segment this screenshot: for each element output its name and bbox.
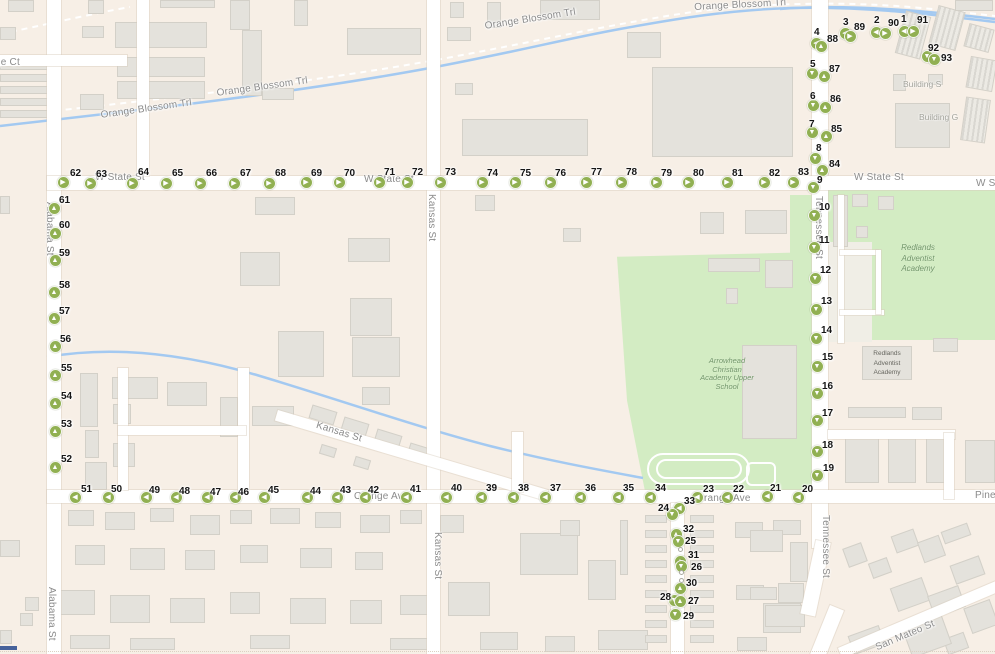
- direction-arrow-icon: ◀: [443, 494, 448, 501]
- route-marker-label: 66: [206, 168, 217, 179]
- direction-arrow-icon: ▶: [882, 30, 887, 37]
- route-marker-30[interactable]: ▲: [674, 582, 687, 595]
- building: [353, 456, 371, 470]
- route-marker-27[interactable]: ▲: [674, 595, 687, 608]
- building: [8, 0, 34, 12]
- route-marker-label: 35: [623, 483, 634, 494]
- direction-arrow-icon: ▲: [52, 464, 59, 471]
- building: [560, 520, 580, 536]
- route-marker-62[interactable]: ▶: [57, 176, 70, 189]
- direction-arrow-icon: ◀: [72, 494, 77, 501]
- building: [250, 635, 290, 649]
- route-marker-label: 30: [686, 578, 697, 589]
- building: [917, 535, 946, 564]
- direction-arrow-icon: ◀: [204, 494, 209, 501]
- route-marker-29[interactable]: ▼: [669, 608, 682, 621]
- route-marker-label: 88: [827, 34, 838, 45]
- building: [167, 382, 207, 406]
- building: [315, 512, 341, 528]
- route-marker-label: 67: [240, 168, 251, 179]
- route-marker-66[interactable]: ▶: [194, 177, 207, 190]
- route-marker-label: 41: [410, 484, 421, 495]
- route-marker-label: 38: [518, 483, 529, 494]
- building: [700, 212, 724, 234]
- building: [80, 94, 104, 110]
- route-marker-label: 26: [691, 562, 702, 573]
- tile-edge: [0, 651, 995, 652]
- building: [933, 338, 958, 352]
- route-marker-label: 16: [822, 381, 833, 392]
- building: [130, 548, 165, 570]
- building: [645, 635, 667, 643]
- building: [450, 2, 464, 18]
- route-marker-label: 78: [626, 167, 637, 178]
- route-marker-55[interactable]: ▲: [49, 369, 62, 382]
- direction-arrow-icon: ▼: [813, 335, 820, 342]
- route-marker-label: 24: [658, 503, 669, 514]
- building: [745, 210, 787, 234]
- route-marker-label: 21: [770, 483, 781, 494]
- building: [627, 32, 661, 58]
- route-marker-label: 1: [901, 14, 907, 25]
- building: [520, 533, 578, 575]
- direction-arrow-icon: ▼: [931, 56, 938, 63]
- building: [25, 597, 39, 611]
- building: [400, 510, 422, 524]
- direction-arrow-icon: ▶: [724, 179, 729, 186]
- route-marker-label: 4: [814, 27, 820, 38]
- building: [765, 605, 805, 627]
- route-marker-label: 65: [172, 168, 183, 179]
- direction-arrow-icon: ▼: [814, 448, 821, 455]
- route-marker-51[interactable]: ◀: [69, 491, 82, 504]
- route-marker-label: 49: [149, 485, 160, 496]
- route-marker-19[interactable]: ▼: [811, 469, 824, 482]
- route-marker-label: 44: [310, 486, 321, 497]
- route-marker-label: 40: [451, 483, 462, 494]
- solar-array: [963, 23, 994, 53]
- direction-arrow-icon: ▶: [618, 179, 623, 186]
- route-marker-88[interactable]: ▲: [815, 40, 828, 53]
- building: [965, 440, 995, 483]
- direction-arrow-icon: ▲: [51, 205, 58, 212]
- direction-arrow-icon: ▶: [685, 179, 690, 186]
- route-marker-label: 63: [96, 169, 107, 180]
- route-marker-label: 80: [693, 168, 704, 179]
- route-marker-label: 81: [732, 168, 743, 179]
- building: [360, 515, 390, 533]
- route-marker-label: 51: [81, 484, 92, 495]
- route-marker-label: 20: [802, 484, 813, 495]
- route-marker-label: 85: [831, 124, 842, 135]
- route-marker-label: 58: [59, 280, 70, 291]
- building: [852, 194, 868, 207]
- direction-arrow-icon: ▶: [404, 179, 409, 186]
- route-marker-label: 11: [819, 235, 830, 246]
- route-marker-label: 32: [683, 524, 694, 535]
- direction-arrow-icon: ◀: [647, 494, 652, 501]
- direction-arrow-icon: ▶: [512, 179, 517, 186]
- route-marker-label: 19: [823, 463, 834, 474]
- direction-arrow-icon: ▶: [847, 33, 852, 40]
- route-marker-label: 33: [684, 496, 695, 507]
- route-marker-label: 22: [733, 484, 744, 495]
- building: [240, 545, 268, 563]
- building: [115, 22, 207, 48]
- route-marker-label: 53: [61, 419, 72, 430]
- route-marker-label: 15: [822, 352, 833, 363]
- building-label: Redlands Adventist Academy: [862, 349, 912, 378]
- direction-arrow-icon: ◀: [901, 28, 906, 35]
- direction-arrow-icon: ◀: [542, 494, 547, 501]
- direction-arrow-icon: ▶: [303, 179, 308, 186]
- building: [350, 298, 392, 336]
- street-label: Kansas St: [426, 194, 437, 241]
- map-canvas[interactable]: Orange CtOrange Blossom TrlOrange Blosso…: [0, 0, 995, 654]
- direction-arrow-icon: ▶: [163, 180, 168, 187]
- building: [878, 196, 894, 210]
- direction-arrow-icon: ▶: [761, 179, 766, 186]
- building: [955, 0, 993, 11]
- building: [319, 444, 337, 458]
- building: [362, 387, 390, 405]
- route-marker-label: 27: [688, 596, 699, 607]
- direction-arrow-icon: ▲: [823, 133, 830, 140]
- building: [290, 598, 326, 624]
- building: [70, 635, 110, 649]
- place-label: Building G: [919, 112, 958, 122]
- route-marker-label: 3: [843, 17, 849, 28]
- street-label: Kansas St: [432, 532, 443, 579]
- direction-arrow-icon: ▼: [814, 472, 821, 479]
- waypoint-dot: [679, 570, 684, 575]
- parking-area: [828, 242, 872, 342]
- direction-arrow-icon: ▶: [87, 180, 92, 187]
- direction-arrow-icon: ▲: [52, 343, 59, 350]
- route-marker-label: 29: [683, 611, 694, 622]
- direction-arrow-icon: ▼: [678, 563, 685, 570]
- route-marker-label: 62: [70, 168, 81, 179]
- direction-arrow-icon: ▲: [821, 73, 828, 80]
- direction-arrow-icon: ◀: [510, 494, 515, 501]
- route-marker-67[interactable]: ▶: [228, 177, 241, 190]
- direction-arrow-icon: ◀: [795, 494, 800, 501]
- direction-arrow-icon: ▲: [52, 257, 59, 264]
- route-marker-label: 86: [830, 94, 841, 105]
- direction-arrow-icon: ▼: [813, 306, 820, 313]
- route-marker-label: 54: [61, 391, 72, 402]
- route-marker-label: 72: [412, 167, 423, 178]
- direction-arrow-icon: ▶: [336, 179, 341, 186]
- direction-arrow-icon: ▶: [479, 179, 484, 186]
- street-label: Orange Blossom Trl: [694, 0, 786, 13]
- route-marker-54[interactable]: ▲: [49, 397, 62, 410]
- building: [0, 110, 52, 118]
- building: [888, 437, 916, 483]
- building: [60, 590, 95, 615]
- building: [0, 540, 20, 557]
- building: [0, 630, 12, 644]
- building: [726, 288, 738, 304]
- building: [150, 508, 174, 522]
- road: [118, 426, 246, 435]
- road: [838, 195, 844, 343]
- direction-arrow-icon: ▲: [677, 598, 684, 605]
- route-marker-label: 82: [769, 168, 780, 179]
- street-label: Tennessee St: [820, 515, 831, 578]
- direction-arrow-icon: ◀: [173, 494, 178, 501]
- building: [448, 582, 490, 616]
- direction-arrow-icon: ▼: [810, 102, 817, 109]
- route-marker-label: 9: [817, 175, 823, 186]
- route-marker-label: 43: [340, 485, 351, 496]
- direction-arrow-icon: ▶: [653, 179, 658, 186]
- route-marker-label: 89: [854, 22, 865, 33]
- building: [690, 515, 714, 523]
- building: [0, 98, 52, 106]
- route-marker-label: 64: [138, 167, 149, 178]
- direction-arrow-icon: ▶: [376, 179, 381, 186]
- building: [652, 67, 793, 157]
- route-marker-52[interactable]: ▲: [49, 461, 62, 474]
- place-label: Building S: [903, 79, 941, 89]
- building: [765, 260, 793, 288]
- building: [842, 542, 868, 568]
- building: [645, 560, 667, 568]
- route-marker-label: 34: [655, 483, 666, 494]
- direction-arrow-icon: ▶: [790, 179, 795, 186]
- building: [891, 528, 920, 553]
- building: [20, 613, 33, 626]
- route-marker-93[interactable]: ▼: [928, 53, 941, 66]
- route-marker-label: 23: [703, 484, 714, 495]
- building: [645, 605, 667, 613]
- direction-arrow-icon: ▼: [669, 511, 676, 518]
- direction-arrow-icon: ◀: [403, 494, 408, 501]
- building: [750, 530, 783, 552]
- building: [750, 587, 777, 600]
- building: [480, 632, 518, 650]
- direction-arrow-icon: ▶: [129, 180, 134, 187]
- route-marker-label: 8: [816, 143, 822, 154]
- route-marker-25[interactable]: ▼: [672, 535, 685, 548]
- building: [350, 600, 382, 624]
- building: [620, 520, 628, 575]
- campus-label: Arrowhead Christian Academy Upper School: [687, 357, 767, 391]
- direction-arrow-icon: ▶: [197, 180, 202, 187]
- building: [856, 226, 868, 238]
- building: [598, 630, 648, 650]
- building: [75, 545, 105, 565]
- road: [840, 250, 878, 255]
- route-marker-label: 79: [661, 168, 672, 179]
- route-marker-68[interactable]: ▶: [263, 177, 276, 190]
- direction-arrow-icon: ▼: [811, 212, 818, 219]
- road: [137, 0, 149, 176]
- campus-label: Redlands Adventist Academy: [880, 243, 956, 275]
- direction-arrow-icon: ▼: [811, 244, 818, 251]
- route-marker-label: 50: [111, 484, 122, 495]
- building: [455, 83, 473, 95]
- scale-bar: [0, 646, 17, 650]
- building: [160, 0, 215, 8]
- building: [690, 635, 714, 643]
- building: [588, 560, 616, 600]
- route-marker-label: 84: [829, 159, 840, 170]
- direction-arrow-icon: ◀: [764, 493, 769, 500]
- waypoint-dot: [678, 547, 683, 552]
- building: [708, 258, 760, 272]
- route-marker-label: 91: [917, 15, 928, 26]
- building: [82, 26, 104, 38]
- direction-arrow-icon: ▼: [814, 390, 821, 397]
- direction-arrow-icon: ▲: [818, 43, 825, 50]
- building: [475, 195, 495, 211]
- direction-arrow-icon: ▲: [819, 167, 826, 174]
- building: [230, 592, 260, 614]
- direction-arrow-icon: ▼: [809, 70, 816, 77]
- street-label: Alabama St: [46, 587, 57, 641]
- direction-arrow-icon: ▲: [52, 372, 59, 379]
- direction-arrow-icon: ▼: [675, 538, 682, 545]
- direction-arrow-icon: ▲: [52, 428, 59, 435]
- building: [0, 74, 52, 82]
- direction-arrow-icon: ◀: [232, 494, 237, 501]
- building: [117, 57, 205, 77]
- building: [190, 515, 220, 535]
- building: [170, 598, 205, 623]
- route-marker-label: 14: [821, 325, 832, 336]
- building: [545, 636, 575, 652]
- route-marker-label: 17: [822, 408, 833, 419]
- route-marker-label: 39: [486, 483, 497, 494]
- building: [790, 542, 808, 582]
- route-marker-label: 73: [445, 167, 456, 178]
- street-label: Orange Ct: [0, 57, 20, 68]
- street-label: W State St: [976, 178, 995, 189]
- direction-arrow-icon: ◀: [362, 494, 367, 501]
- building: [400, 595, 428, 615]
- route-marker-64[interactable]: ▶: [126, 177, 139, 190]
- route-marker-label: 13: [821, 296, 832, 307]
- building: [0, 27, 16, 40]
- route-marker-label: 52: [61, 454, 72, 465]
- building: [117, 81, 205, 99]
- route-marker-label: 57: [59, 306, 70, 317]
- route-marker-label: 70: [344, 168, 355, 179]
- building: [88, 0, 104, 14]
- building: [778, 583, 804, 603]
- route-marker-91[interactable]: ▶: [907, 25, 920, 38]
- building: [895, 103, 950, 148]
- route-marker-label: 48: [179, 486, 190, 497]
- building: [352, 337, 400, 377]
- solar-array: [960, 96, 991, 143]
- route-marker-label: 36: [585, 483, 596, 494]
- route-marker-label: 45: [268, 485, 279, 496]
- route-marker-label: 5: [810, 59, 816, 70]
- building: [240, 252, 280, 286]
- direction-arrow-icon: ▼: [812, 275, 819, 282]
- direction-arrow-icon: ▲: [51, 315, 58, 322]
- direction-arrow-icon: ▲: [52, 400, 59, 407]
- direction-arrow-icon: ▶: [231, 180, 236, 187]
- building: [848, 407, 906, 418]
- route-marker-label: 47: [210, 487, 221, 498]
- direction-arrow-icon: ◀: [105, 494, 110, 501]
- direction-arrow-icon: ▶: [910, 28, 915, 35]
- building: [941, 523, 972, 545]
- direction-arrow-icon: ▼: [812, 155, 819, 162]
- route-marker-label: 12: [820, 265, 831, 276]
- direction-arrow-icon: ◀: [615, 494, 620, 501]
- direction-arrow-icon: ▼: [810, 184, 817, 191]
- building: [868, 557, 892, 579]
- direction-arrow-icon: ▼: [814, 417, 821, 424]
- route-marker-label: 69: [311, 168, 322, 179]
- route-marker-65[interactable]: ▶: [160, 177, 173, 190]
- route-marker-label: 56: [60, 334, 71, 345]
- route-marker-label: 25: [685, 536, 696, 547]
- route-marker-label: 2: [874, 15, 880, 26]
- street-label: Pine Ave: [975, 490, 995, 501]
- direction-arrow-icon: ◀: [334, 494, 339, 501]
- building: [130, 638, 175, 650]
- building: [645, 530, 667, 538]
- direction-arrow-icon: ◀: [577, 494, 582, 501]
- building: [645, 620, 667, 628]
- route-marker-label: 59: [59, 248, 70, 259]
- building: [890, 577, 931, 612]
- direction-arrow-icon: ▲: [677, 585, 684, 592]
- direction-arrow-icon: ▲: [822, 104, 829, 111]
- direction-arrow-icon: ▶: [547, 179, 552, 186]
- building: [255, 197, 295, 215]
- route-marker-label: 77: [591, 167, 602, 178]
- building: [447, 27, 471, 41]
- direction-arrow-icon: ◀: [304, 494, 309, 501]
- direction-arrow-icon: ▶: [583, 179, 588, 186]
- route-marker-label: 90: [888, 18, 899, 29]
- building: [270, 508, 300, 524]
- route-marker-22[interactable]: ◀: [721, 491, 734, 504]
- direction-arrow-icon: ◀: [143, 494, 148, 501]
- building: [912, 407, 942, 420]
- street-label: W State St: [854, 172, 904, 183]
- route-marker-label: 68: [275, 168, 286, 179]
- route-marker-label: 61: [59, 195, 70, 206]
- direction-arrow-icon: ◀: [873, 29, 878, 36]
- building: [185, 550, 215, 570]
- route-marker-label: 31: [688, 550, 699, 561]
- route-marker-63[interactable]: ▶: [84, 177, 97, 190]
- direction-arrow-icon: ▶: [60, 179, 65, 186]
- route-marker-53[interactable]: ▲: [49, 425, 62, 438]
- building: [85, 430, 99, 458]
- direction-arrow-icon: ▼: [672, 611, 679, 618]
- building: [105, 512, 135, 530]
- direction-arrow-icon: ◀: [261, 494, 266, 501]
- route-marker-label: 28: [660, 592, 671, 603]
- building: [68, 510, 94, 526]
- building: [300, 548, 332, 568]
- building: [348, 238, 390, 262]
- building: [0, 196, 10, 214]
- building: [440, 515, 464, 533]
- route-marker-label: 10: [819, 202, 830, 213]
- building: [294, 0, 308, 26]
- building: [645, 545, 667, 553]
